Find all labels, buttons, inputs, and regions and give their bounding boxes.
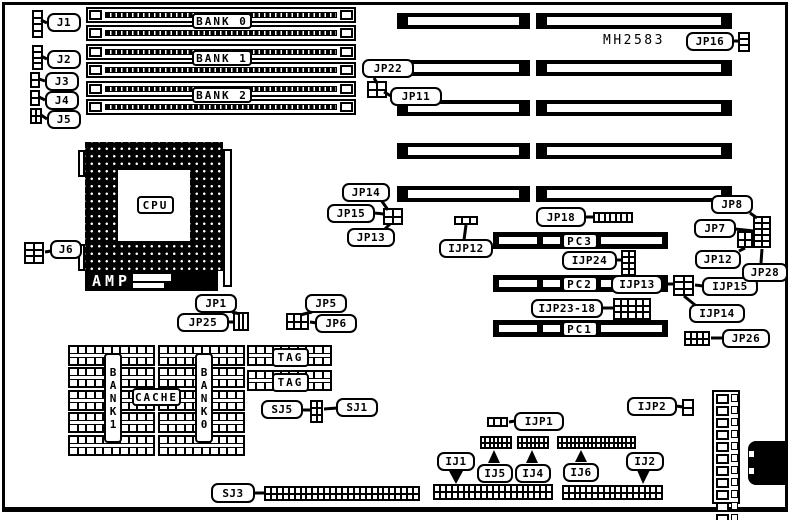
- pin: [606, 444, 608, 448]
- pin: [563, 438, 565, 442]
- connector-sj5-1: [310, 400, 323, 423]
- pin: [355, 488, 359, 493]
- pin: [755, 230, 761, 234]
- pin: [121, 347, 128, 353]
- callout-jp18: JP18: [536, 207, 586, 227]
- pin: [87, 448, 94, 454]
- pin: [746, 241, 751, 247]
- pin: [237, 347, 244, 353]
- connector-jp7-8b: [737, 231, 753, 248]
- power-pin: [731, 490, 738, 498]
- callout-jp14: JP14: [342, 183, 390, 202]
- callout-jp25: JP25: [177, 313, 229, 332]
- pin: [147, 414, 154, 420]
- pin: [597, 444, 599, 448]
- pin: [296, 488, 300, 493]
- pin: [70, 403, 77, 409]
- pin: [266, 495, 270, 500]
- motherboard-diagram: AMPMH2583BANK 0BANK 1BANK 2CPUPC3PC2PC1T…: [0, 0, 792, 520]
- pin: [220, 448, 227, 454]
- pin: [237, 358, 244, 364]
- pin: [147, 448, 154, 454]
- pin: [615, 438, 617, 442]
- pin: [186, 392, 193, 398]
- cpu-socket-tab-1: [78, 150, 85, 177]
- component-label-bank1: BANK 1: [192, 50, 252, 66]
- pin: [302, 315, 307, 321]
- pin: [523, 444, 525, 448]
- pin: [535, 493, 539, 498]
- pin: [644, 313, 649, 318]
- pin: [237, 448, 244, 454]
- simm-pins: [105, 67, 337, 73]
- power-pin: [716, 442, 729, 452]
- pin: [169, 425, 176, 431]
- pin: [96, 380, 103, 386]
- component-label-tag-1: TAG: [272, 348, 309, 367]
- pin: [528, 444, 530, 448]
- pin: [394, 210, 401, 216]
- pin: [237, 392, 244, 398]
- pin: [307, 495, 311, 500]
- pin: [600, 214, 603, 221]
- pin: [585, 438, 587, 442]
- pin: [177, 437, 184, 443]
- pin: [495, 419, 499, 425]
- pin: [617, 214, 620, 221]
- connector-j3: [30, 72, 40, 88]
- connector-ijp13: [673, 275, 694, 296]
- pin: [408, 495, 412, 500]
- power-pin: [731, 430, 738, 438]
- pin: [220, 392, 227, 398]
- pin: [272, 488, 276, 493]
- pin: [32, 74, 38, 79]
- pin: [186, 347, 193, 353]
- pin: [302, 323, 307, 329]
- pin: [228, 392, 235, 398]
- pin: [402, 488, 406, 493]
- simm-pins: [105, 30, 337, 36]
- pin: [524, 493, 528, 498]
- pin: [70, 437, 77, 443]
- din-notch: [749, 468, 754, 474]
- slot-opening: [408, 147, 519, 155]
- callout-jp8: JP8: [711, 195, 753, 214]
- pin: [685, 277, 693, 281]
- socket-gap: [160, 444, 243, 447]
- pin: [599, 494, 603, 499]
- pin: [220, 358, 227, 364]
- pin: [605, 494, 609, 499]
- callout-jp5: JP5: [305, 294, 347, 313]
- expansion-slot-8: [536, 143, 732, 159]
- socket-pins: [70, 448, 153, 454]
- pin: [559, 438, 561, 442]
- connector-ijp23-18: [613, 298, 651, 320]
- component-label-pc3: PC3: [562, 233, 598, 249]
- callout-ij2: IJ2: [626, 452, 664, 471]
- pin: [657, 494, 661, 499]
- pin: [237, 380, 244, 386]
- simm-pins: [105, 104, 337, 110]
- pin: [599, 487, 603, 492]
- pin: [34, 53, 41, 57]
- slot-opening: [547, 147, 721, 155]
- pin: [220, 380, 227, 386]
- pin: [630, 252, 635, 256]
- pin: [500, 486, 504, 491]
- pin: [459, 493, 463, 498]
- din-notch: [749, 451, 754, 457]
- pin: [540, 438, 542, 442]
- amp-marking: [133, 283, 164, 288]
- pin: [637, 313, 642, 318]
- pin: [540, 444, 542, 448]
- pin: [361, 488, 365, 493]
- pin: [570, 487, 574, 492]
- pin: [623, 258, 628, 262]
- pin: [96, 437, 103, 443]
- pin: [35, 257, 42, 262]
- pin: [470, 486, 474, 491]
- power-pin: [731, 478, 738, 486]
- pin: [629, 313, 634, 318]
- pin: [235, 314, 238, 329]
- pin: [237, 437, 244, 443]
- expansion-slot-10: [536, 186, 732, 202]
- pin: [138, 358, 145, 364]
- pin: [228, 403, 235, 409]
- expansion-slot-7: [397, 143, 530, 159]
- pin: [686, 333, 690, 338]
- callout-jp6: JP6: [315, 314, 357, 333]
- pin: [318, 416, 322, 421]
- pin: [611, 214, 614, 221]
- pin: [35, 251, 42, 256]
- pin: [535, 486, 539, 491]
- text-part-number: MH2583: [603, 33, 693, 49]
- pin: [35, 244, 42, 249]
- pin: [257, 347, 263, 353]
- pin: [266, 358, 272, 364]
- callout-sj1: SJ1: [336, 398, 378, 417]
- pin: [96, 425, 103, 431]
- power-pin: [731, 502, 738, 510]
- pin: [177, 425, 184, 431]
- pin: [684, 401, 692, 407]
- amp-retainer-bar: AMP: [85, 271, 218, 291]
- pin: [739, 233, 744, 239]
- pin: [96, 347, 103, 353]
- pin: [249, 383, 255, 389]
- pin: [447, 486, 451, 491]
- pin: [32, 92, 38, 97]
- pin: [622, 300, 627, 305]
- pin: [508, 444, 510, 448]
- pin: [488, 493, 492, 498]
- pin: [605, 487, 609, 492]
- pin: [495, 438, 497, 442]
- connector-ijp1: [487, 417, 508, 427]
- connector-ij1: [433, 484, 553, 500]
- pin: [675, 290, 683, 294]
- pin: [177, 448, 184, 454]
- callout-sj5: SJ5: [261, 400, 303, 419]
- pin: [739, 241, 744, 247]
- component-label-bank0: BANK 0: [192, 13, 252, 29]
- pin: [529, 493, 533, 498]
- simm-end-clip: [89, 65, 102, 75]
- component-label-pc2: PC2: [562, 276, 598, 292]
- pin: [138, 369, 145, 375]
- pin: [545, 438, 547, 442]
- pin: [147, 425, 154, 431]
- component-label-cache: CACHE: [132, 388, 181, 406]
- pin: [414, 488, 418, 493]
- pin: [646, 494, 650, 499]
- pin: [482, 493, 486, 498]
- pin: [87, 414, 94, 420]
- pin: [740, 34, 748, 38]
- pin: [684, 409, 692, 415]
- pin: [644, 307, 649, 312]
- pin: [482, 438, 484, 442]
- pin: [70, 347, 77, 353]
- pin: [692, 333, 696, 338]
- pin: [622, 307, 627, 312]
- pin: [220, 403, 227, 409]
- pin: [177, 414, 184, 420]
- simm-end-clip: [340, 10, 353, 20]
- pin: [547, 493, 551, 498]
- pin: [266, 488, 270, 493]
- pin: [518, 486, 522, 491]
- pin: [96, 392, 103, 398]
- expansion-slot-1: [397, 13, 530, 29]
- pin: [585, 444, 587, 448]
- callout-j1: J1: [47, 13, 81, 32]
- pin: [435, 493, 439, 498]
- pin: [589, 438, 591, 442]
- pin: [104, 448, 111, 454]
- pin: [640, 494, 644, 499]
- simm-end-clip: [89, 84, 102, 94]
- pin: [686, 340, 690, 345]
- connector-ijp24: [621, 250, 636, 276]
- pin: [295, 323, 300, 329]
- pin: [138, 380, 145, 386]
- pin: [169, 369, 176, 375]
- pin: [130, 414, 137, 420]
- pin: [318, 409, 322, 414]
- simm-end-clip: [340, 47, 353, 57]
- pin: [160, 358, 167, 364]
- pin: [453, 486, 457, 491]
- pin: [632, 438, 634, 442]
- pin: [593, 438, 595, 442]
- power-pin: [731, 406, 738, 414]
- pin: [318, 402, 322, 407]
- pin: [529, 486, 533, 491]
- component-label-pc1: PC1: [562, 321, 598, 337]
- pin: [547, 486, 551, 491]
- pin: [629, 300, 634, 305]
- pin: [87, 437, 94, 443]
- callout-jp1: JP1: [195, 294, 237, 313]
- pin: [628, 494, 632, 499]
- pin: [266, 372, 272, 378]
- pin: [87, 380, 94, 386]
- connector-sj3: [264, 486, 420, 501]
- callout-ij1: IJ1: [437, 452, 475, 471]
- pin: [615, 307, 620, 312]
- callout-jp12: JP12: [695, 250, 741, 269]
- pin: [186, 414, 193, 420]
- pin: [220, 347, 227, 353]
- component-label-bank1-v: BANK1: [104, 353, 122, 443]
- pin: [147, 380, 154, 386]
- pin: [576, 487, 580, 492]
- pin: [470, 493, 474, 498]
- pin: [113, 448, 120, 454]
- pin: [295, 315, 300, 321]
- pin: [564, 487, 568, 492]
- connector-jp26: [684, 331, 710, 346]
- pin: [519, 438, 521, 442]
- pin: [87, 425, 94, 431]
- pin: [194, 448, 201, 454]
- pin: [34, 19, 41, 24]
- pin: [228, 425, 235, 431]
- pin: [96, 403, 103, 409]
- pin: [384, 495, 388, 500]
- callout-jp7: JP7: [694, 219, 736, 238]
- pin: [634, 494, 638, 499]
- slot-opening: [547, 190, 721, 198]
- connector-ij4: [517, 436, 549, 449]
- pin: [488, 486, 492, 491]
- pin: [228, 448, 235, 454]
- pin: [249, 372, 255, 378]
- callout-jp13: JP13: [347, 228, 395, 247]
- connector-ijp12: [454, 216, 478, 225]
- pin: [623, 252, 628, 256]
- simm-end-clip: [89, 28, 102, 38]
- pin: [373, 495, 377, 500]
- pin: [244, 314, 247, 329]
- pin: [220, 369, 227, 375]
- pin: [459, 486, 463, 491]
- expansion-slot-3: [397, 60, 530, 76]
- callout-j5: J5: [47, 110, 81, 129]
- pin: [87, 347, 94, 353]
- pin: [414, 495, 418, 500]
- pin: [220, 437, 227, 443]
- amp-logo: AMP: [85, 272, 131, 290]
- pin: [169, 347, 176, 353]
- cpu-lever: [223, 149, 232, 287]
- pin: [611, 494, 615, 499]
- pin: [523, 438, 525, 442]
- pin: [651, 487, 655, 492]
- pin: [26, 244, 33, 249]
- connector-j5: [30, 108, 42, 124]
- socket-gap: [70, 444, 153, 447]
- slot-opening: [408, 64, 519, 72]
- pin: [32, 110, 35, 115]
- component-label-bank2: BANK 2: [192, 87, 252, 103]
- pin: [228, 414, 235, 420]
- pin: [611, 487, 615, 492]
- pin: [698, 340, 702, 345]
- pin: [763, 230, 769, 234]
- pin: [186, 437, 193, 443]
- pin: [315, 372, 321, 378]
- pin: [471, 218, 476, 223]
- simm-end-clip: [89, 10, 102, 20]
- pin: [169, 358, 176, 364]
- pin: [616, 487, 620, 492]
- pin: [536, 438, 538, 442]
- pin: [177, 369, 184, 375]
- pin: [70, 369, 77, 375]
- pin: [220, 414, 227, 420]
- keyboard-din-connector: [748, 441, 788, 485]
- pin: [34, 12, 41, 17]
- pin: [87, 369, 94, 375]
- connector-jp14-15: [383, 208, 403, 225]
- component-label-cpu: CPU: [137, 196, 174, 214]
- pin: [499, 438, 501, 442]
- pin: [96, 448, 103, 454]
- callout-jp16: JP16: [686, 32, 734, 51]
- pin: [240, 314, 243, 329]
- pin: [384, 488, 388, 493]
- pin: [70, 380, 77, 386]
- pin: [296, 495, 300, 500]
- pin: [331, 488, 335, 493]
- pin: [324, 372, 330, 378]
- pin: [651, 494, 655, 499]
- pin: [740, 40, 748, 44]
- power-pin: [731, 466, 738, 474]
- pin: [456, 218, 461, 223]
- pin: [541, 493, 545, 498]
- pin: [257, 383, 263, 389]
- slot-opening: [543, 237, 560, 244]
- pin: [503, 438, 505, 442]
- callout-ij5: IJ5: [477, 464, 513, 483]
- callout-j6: J6: [50, 240, 82, 259]
- pin: [441, 493, 445, 498]
- pin: [447, 493, 451, 498]
- pin: [408, 488, 412, 493]
- power-pin: [716, 466, 729, 476]
- slot-opening: [547, 104, 721, 112]
- pin: [378, 83, 385, 89]
- pin: [228, 369, 235, 375]
- pin: [465, 486, 469, 491]
- pin: [615, 313, 620, 318]
- connector-ij6: [557, 436, 636, 449]
- pin: [26, 257, 33, 262]
- pin: [367, 495, 371, 500]
- pin: [130, 425, 137, 431]
- pin: [32, 99, 38, 104]
- pin: [435, 486, 439, 491]
- power-connector: [712, 390, 740, 504]
